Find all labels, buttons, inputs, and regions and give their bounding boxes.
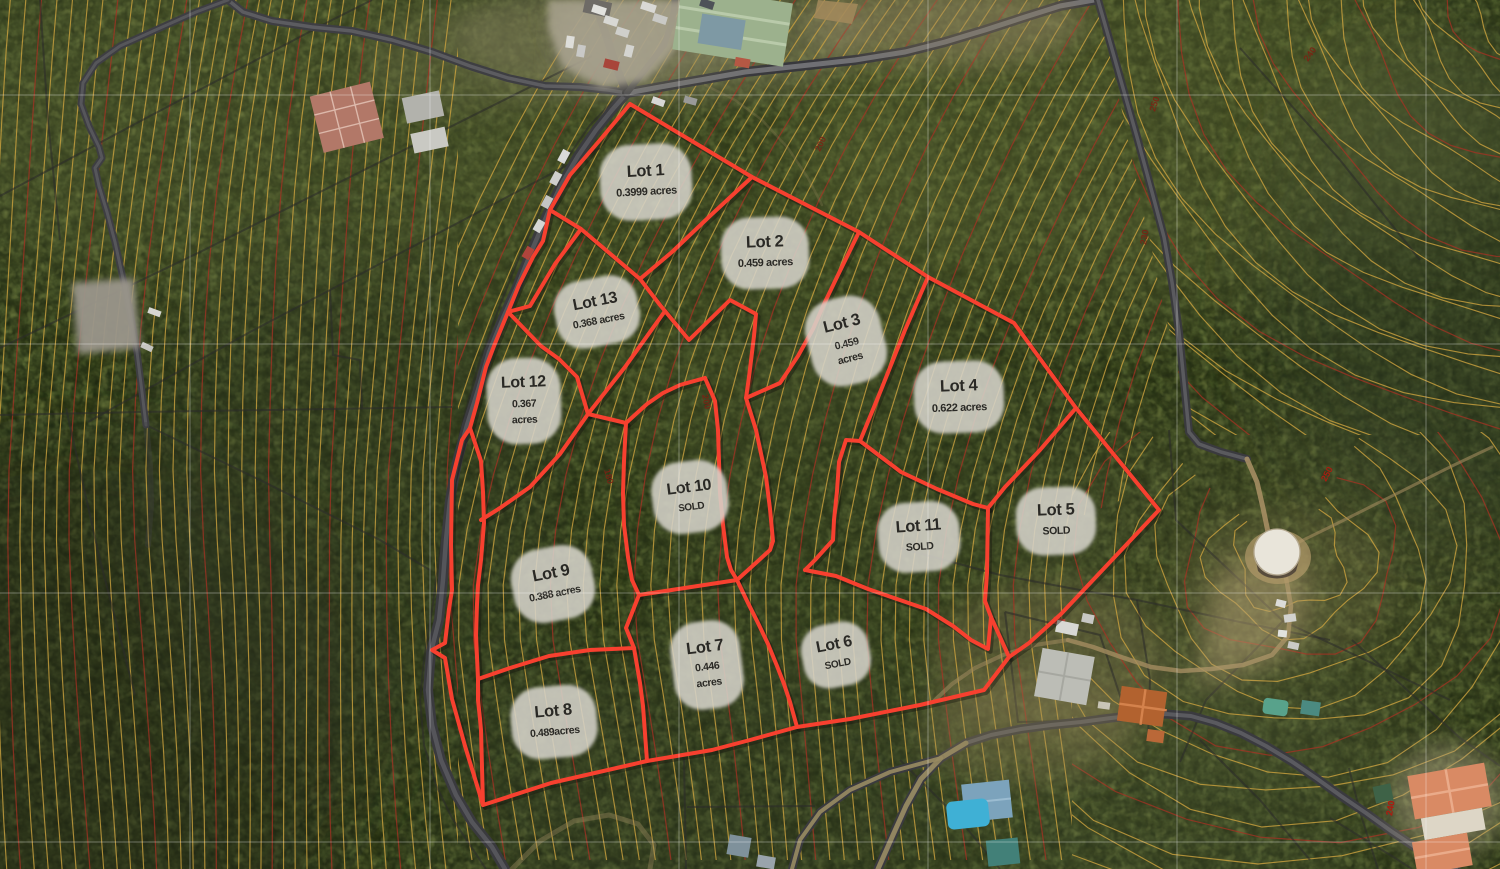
svg-text:0.367: 0.367: [512, 398, 537, 411]
svg-text:Lot 2: Lot 2: [746, 232, 784, 251]
svg-text:Lot 5: Lot 5: [1037, 500, 1075, 519]
svg-text:Lot 8: Lot 8: [534, 700, 573, 721]
svg-text:0.622 acres: 0.622 acres: [932, 401, 988, 415]
svg-text:Lot 4: Lot 4: [940, 376, 979, 395]
svg-text:acres: acres: [512, 414, 538, 427]
svg-text:Lot 11: Lot 11: [895, 515, 942, 536]
svg-text:Lot 12: Lot 12: [501, 373, 547, 392]
svg-text:SOLD: SOLD: [1042, 524, 1071, 537]
svg-text:Lot 1: Lot 1: [626, 161, 665, 181]
svg-text:0.459 acres: 0.459 acres: [738, 256, 794, 270]
svg-text:SOLD: SOLD: [906, 540, 935, 554]
